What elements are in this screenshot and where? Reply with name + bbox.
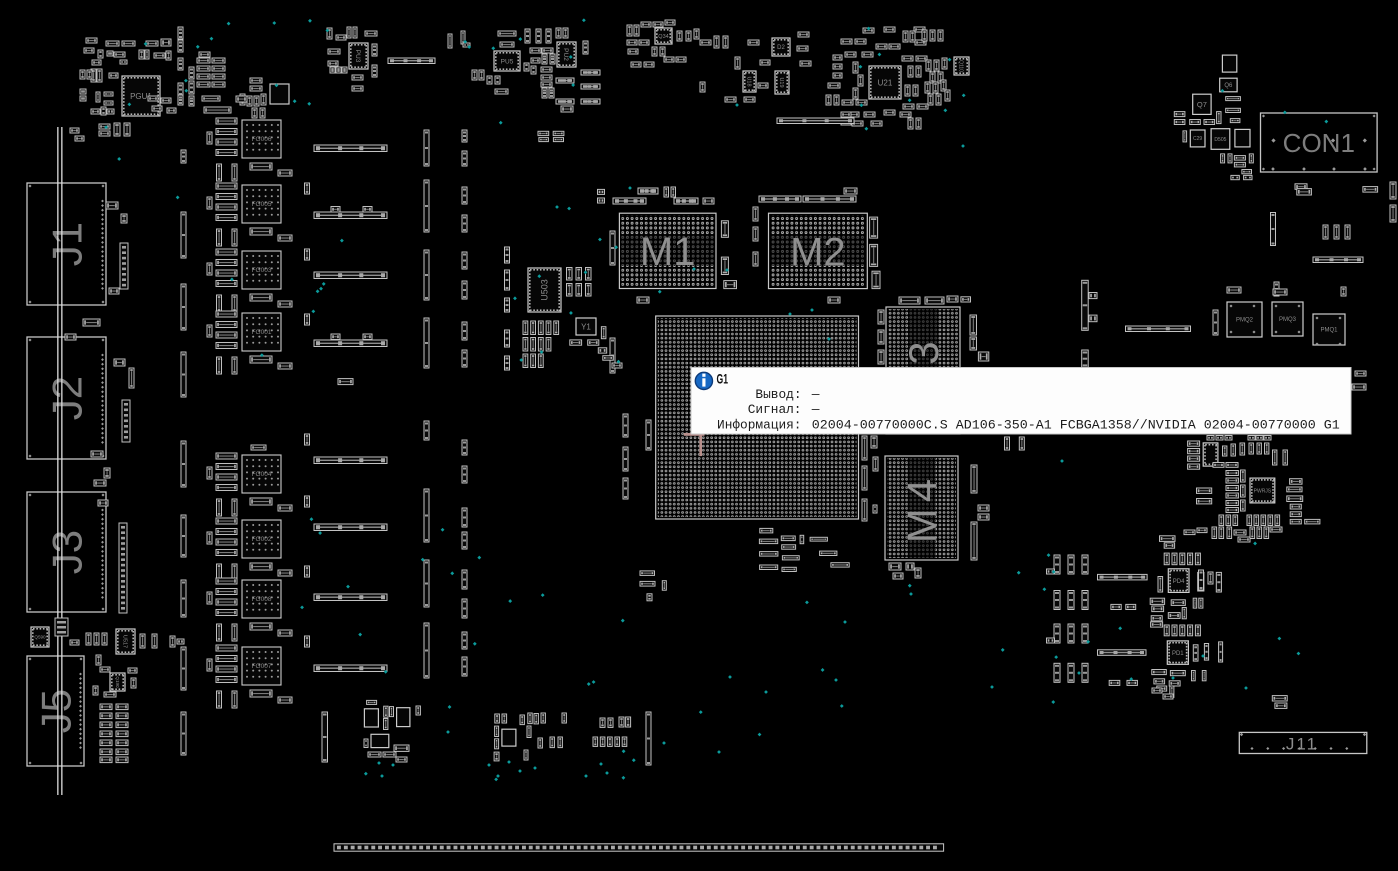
svg-text:U517: U517 bbox=[122, 635, 128, 648]
svg-text:PD4: PD4 bbox=[1173, 579, 1185, 585]
svg-text:Информация:: Информация: bbox=[717, 417, 801, 432]
svg-text:FG003: FG003 bbox=[252, 267, 272, 274]
svg-text:M4: M4 bbox=[899, 473, 946, 543]
svg-text:J1: J1 bbox=[44, 222, 91, 266]
svg-text:FG006: FG006 bbox=[252, 136, 272, 143]
svg-text:C29: C29 bbox=[1193, 136, 1202, 142]
svg-text:Q7: Q7 bbox=[1197, 100, 1207, 109]
svg-text:Q34: Q34 bbox=[658, 34, 668, 40]
svg-text:PMQ1: PMQ1 bbox=[1320, 328, 1338, 334]
svg-text:J11: J11 bbox=[1286, 735, 1318, 754]
svg-text:D2: D2 bbox=[777, 45, 785, 51]
svg-text:U19: U19 bbox=[778, 77, 784, 87]
svg-text:J5: J5 bbox=[33, 689, 80, 733]
svg-text:CON1: CON1 bbox=[1283, 128, 1355, 158]
svg-text:Q110: Q110 bbox=[958, 60, 964, 72]
svg-text:Вывод:: Вывод: bbox=[755, 387, 801, 402]
svg-text:PU5: PU5 bbox=[501, 58, 514, 65]
svg-text:FG008: FG008 bbox=[252, 596, 272, 603]
svg-text:J2: J2 bbox=[44, 376, 91, 420]
svg-text:—: — bbox=[811, 402, 820, 417]
svg-text:U503: U503 bbox=[540, 279, 550, 301]
svg-text:FG007: FG007 bbox=[252, 663, 272, 670]
svg-text:PWRJS: PWRJS bbox=[1254, 488, 1272, 494]
svg-text:PMQ2: PMQ2 bbox=[1236, 318, 1254, 324]
svg-text:FG004: FG004 bbox=[252, 471, 272, 478]
svg-text:Q190: Q190 bbox=[115, 676, 120, 688]
svg-text:U21: U21 bbox=[878, 78, 893, 87]
svg-text:FG002: FG002 bbox=[252, 536, 272, 543]
svg-text:PMQ3: PMQ3 bbox=[1279, 317, 1297, 323]
svg-text:J3: J3 bbox=[44, 530, 91, 574]
svg-text:Q6: Q6 bbox=[1224, 83, 1233, 89]
svg-text:U18: U18 bbox=[746, 76, 752, 86]
svg-text:Y1: Y1 bbox=[581, 322, 591, 331]
svg-text:PD1: PD1 bbox=[1172, 651, 1184, 657]
svg-text:Q590: Q590 bbox=[34, 635, 46, 640]
svg-text:PU2: PU2 bbox=[562, 48, 569, 61]
svg-text:D505: D505 bbox=[1214, 137, 1226, 143]
svg-text:FG005: FG005 bbox=[252, 201, 272, 208]
svg-text:02004-00770000C.S AD106-350-A1: 02004-00770000C.S AD106-350-A1 FCBGA1358… bbox=[812, 417, 1340, 432]
svg-text:PU3: PU3 bbox=[354, 50, 361, 63]
svg-text:M2: M2 bbox=[790, 230, 846, 274]
svg-text:FG001: FG001 bbox=[252, 329, 272, 336]
svg-text:Сигнал:: Сигнал: bbox=[748, 402, 802, 417]
svg-text:M1: M1 bbox=[640, 230, 696, 274]
svg-text:G1: G1 bbox=[717, 371, 729, 387]
svg-text:—: — bbox=[811, 387, 820, 402]
